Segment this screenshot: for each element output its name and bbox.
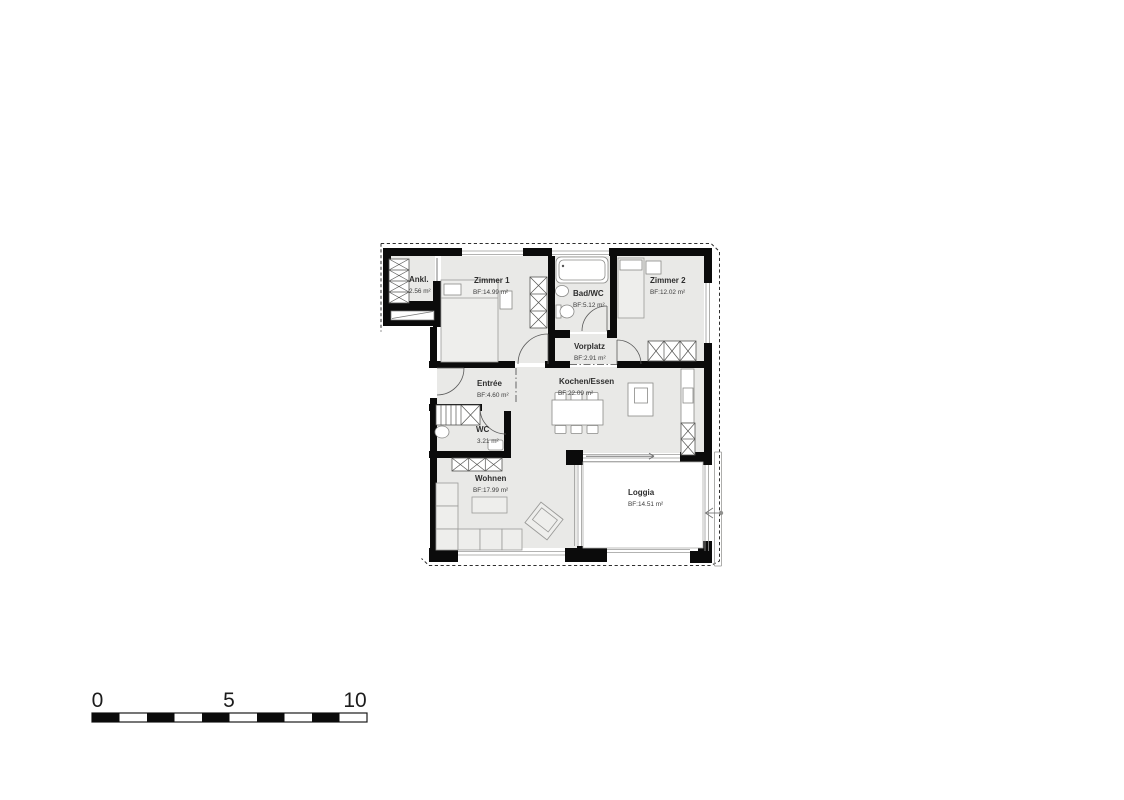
label-entree: Entrée: [477, 379, 502, 388]
label-wc: WC: [476, 425, 490, 434]
zimmer1-closet: [530, 277, 547, 328]
kitchen-counter: [681, 369, 694, 423]
window-ankleide-shelf: [391, 311, 434, 320]
scale-label-10: 10: [343, 689, 366, 712]
chair: [587, 426, 598, 434]
wall-east-upper: [704, 248, 712, 283]
loggia-pillar-nw: [566, 450, 583, 465]
loggia-pillar-sw: [577, 546, 607, 562]
wall-east-lower: [704, 343, 712, 465]
label-loggia: Loggia: [628, 488, 655, 497]
wall-ankleide-divider-a: [433, 248, 441, 256]
loggia-railing-east: [705, 465, 709, 551]
dining-set: [552, 393, 603, 434]
loggia-pillar-se-b: [690, 551, 712, 563]
window-bad-north: [552, 248, 609, 256]
label-bad-wc: Bad/WC: [573, 289, 604, 298]
scale-segment: [147, 713, 175, 722]
loggia-railing-south: [607, 550, 690, 553]
bad-sink: [556, 286, 569, 297]
area-vorplatz: BF:2.91 m²: [574, 355, 606, 362]
sliding-door: [583, 453, 680, 461]
wc-closet: [436, 405, 480, 425]
wall-bad-south-b: [607, 330, 617, 338]
kitchen-island: [628, 383, 653, 416]
zimmer2-wardrobe: [648, 341, 696, 361]
wall-wc-east: [504, 411, 511, 455]
floor-plan-drawing: Ankl. 2.56 m² Zimmer 1 BF:14.99 m² Bad/W…: [0, 0, 1124, 800]
chair: [555, 426, 566, 434]
wall-mid-c: [617, 361, 704, 368]
label-kochen-essen: Kochen/Essen: [559, 377, 614, 386]
wall-bad-zimmer2: [610, 248, 617, 338]
area-wohnen: BF:17.99 m²: [473, 487, 508, 494]
area-bad-wc: BF:5.12 m²: [573, 302, 605, 309]
bathtub: [556, 257, 608, 283]
wall-north: [383, 248, 712, 256]
wohnen-sideboard: [452, 458, 502, 471]
coffee-table: [472, 497, 507, 513]
scale-segment: [257, 713, 285, 722]
area-ankleide: 2.56 m²: [409, 288, 431, 295]
label-vorplatz: Vorplatz: [574, 342, 605, 351]
ankleide-wardrobe: [389, 259, 409, 303]
area-kochen-essen: BF:22.09 m²: [558, 390, 593, 397]
loggia-outer-frame: [715, 452, 722, 566]
scale-segment: [202, 713, 230, 722]
wall-wc-south: [429, 451, 511, 458]
wall-ankleide-south-lip: [383, 320, 441, 326]
floor-plan-page: Ankl. 2.56 m² Zimmer 1 BF:14.99 m² Bad/W…: [0, 0, 1124, 800]
dining-table: [552, 400, 603, 425]
label-zimmer-1: Zimmer 1: [474, 276, 510, 285]
area-zimmer-1: BF:14.99 m²: [473, 289, 508, 296]
kitchen-tall-cabinets: [681, 423, 695, 455]
wall-ankleide-divider-b: [433, 281, 441, 301]
scale-label-5: 5: [223, 689, 235, 712]
wc-sink: [435, 426, 449, 438]
bad-toilet: [556, 305, 574, 318]
label-zimmer-2: Zimmer 2: [650, 276, 686, 285]
window-zimmer1-north: [462, 248, 523, 256]
label-ankleide: Ankl.: [409, 275, 429, 284]
label-wohnen: Wohnen: [475, 474, 507, 483]
chair: [571, 426, 582, 434]
area-entree: BF:4.60 m²: [477, 392, 509, 399]
window-zimmer2-east: [704, 283, 712, 343]
wall-zimmer1-bad: [548, 248, 555, 330]
scale-segment: [92, 713, 120, 722]
scale-label-0: 0: [92, 689, 104, 712]
scale-segment: [312, 713, 340, 722]
scale-bar: 0 5 10: [92, 689, 367, 722]
wall-mid-b: [545, 361, 570, 368]
zimmer2-nightstand: [646, 261, 661, 274]
area-wc: 3.21 m²: [477, 438, 499, 445]
area-zimmer-2: BF:12.02 m²: [650, 289, 685, 296]
area-loggia: BF:14.51 m²: [628, 501, 663, 508]
